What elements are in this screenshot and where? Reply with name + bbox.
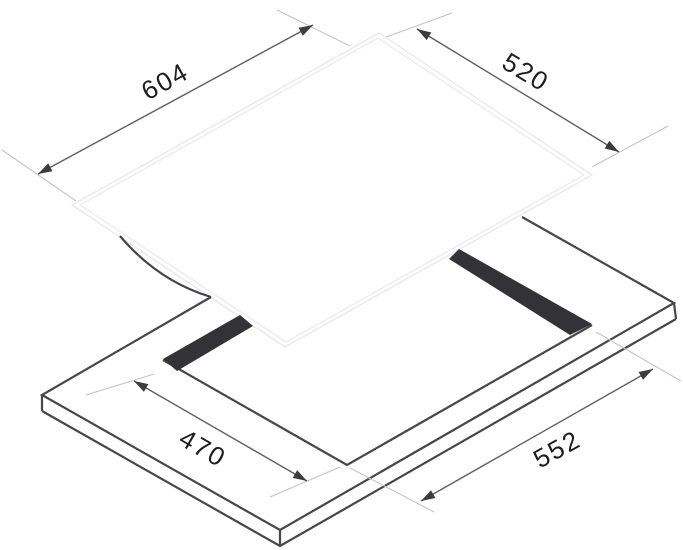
glass-width-label: 604 — [136, 56, 194, 106]
arrowhead-end — [293, 470, 307, 481]
extension-line — [592, 126, 668, 167]
arrowhead-start — [38, 163, 52, 174]
extension-line — [2, 150, 76, 201]
cutout-width-label: 552 — [528, 424, 586, 474]
extension-line — [277, 10, 350, 46]
extension-line — [386, 13, 452, 37]
cutout-gap-left — [163, 315, 253, 371]
arrowhead-end — [639, 369, 653, 380]
arrowhead-start — [134, 381, 148, 392]
extension-line — [270, 467, 340, 497]
dimension-cutout-depth: 470 — [86, 374, 340, 497]
arrowhead-start — [417, 29, 431, 40]
dimension-line — [421, 369, 653, 501]
technical-drawing-canvas: 604 520 470 552 — [0, 0, 683, 550]
worktop-right-corner-edge — [674, 303, 676, 319]
arrowhead-end — [605, 141, 619, 152]
dimension-cutout-width: 552 — [350, 332, 681, 512]
arrowhead-end — [299, 25, 313, 36]
drawing-page: 604 520 470 552 — [0, 0, 683, 550]
extension-line — [350, 468, 434, 512]
cutout-gap-right — [449, 249, 592, 335]
worktop-slab-bottom-edge — [42, 319, 676, 546]
glass-depth-label: 520 — [497, 46, 555, 97]
arrowhead-start — [421, 490, 435, 501]
cutout-depth-label: 470 — [174, 423, 232, 474]
